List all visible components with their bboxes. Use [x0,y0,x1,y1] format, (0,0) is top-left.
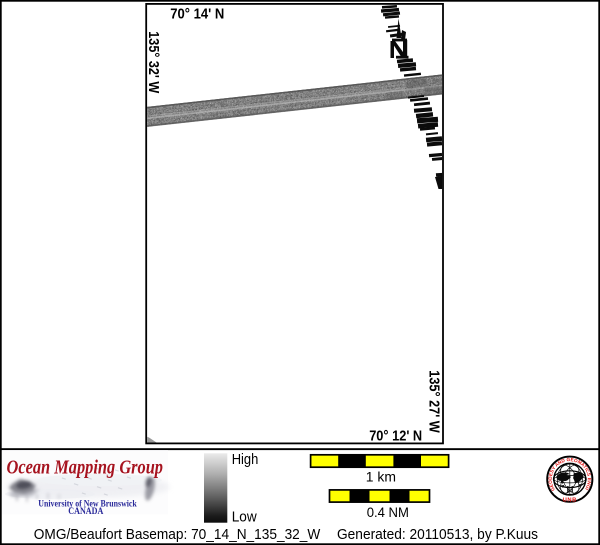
svg-text:High: High [232,452,259,468]
svg-text:70° 12' N: 70° 12' N [369,428,422,444]
svg-text:OMG/Beaufort Basemap: 70_14_N_: OMG/Beaufort Basemap: 70_14_N_135_32_W [34,527,321,543]
svg-text:1 km: 1 km [366,469,396,485]
svg-text:Generated: 20110513, by P.Kuus: Generated: 20110513, by P.Kuus [337,527,538,543]
svg-text:Low: Low [232,509,257,525]
svg-text:CANADA: CANADA [68,507,103,517]
svg-text:135° 27' W: 135° 27' W [426,370,442,433]
svg-text:70° 14' N: 70° 14' N [170,7,224,23]
svg-text:UNB: UNB [563,498,577,504]
svg-text:Ocean Mapping Group: Ocean Mapping Group [7,456,164,478]
svg-text:0.4 NM: 0.4 NM [367,504,409,520]
svg-text:135° 32' W: 135° 32' W [145,31,161,93]
